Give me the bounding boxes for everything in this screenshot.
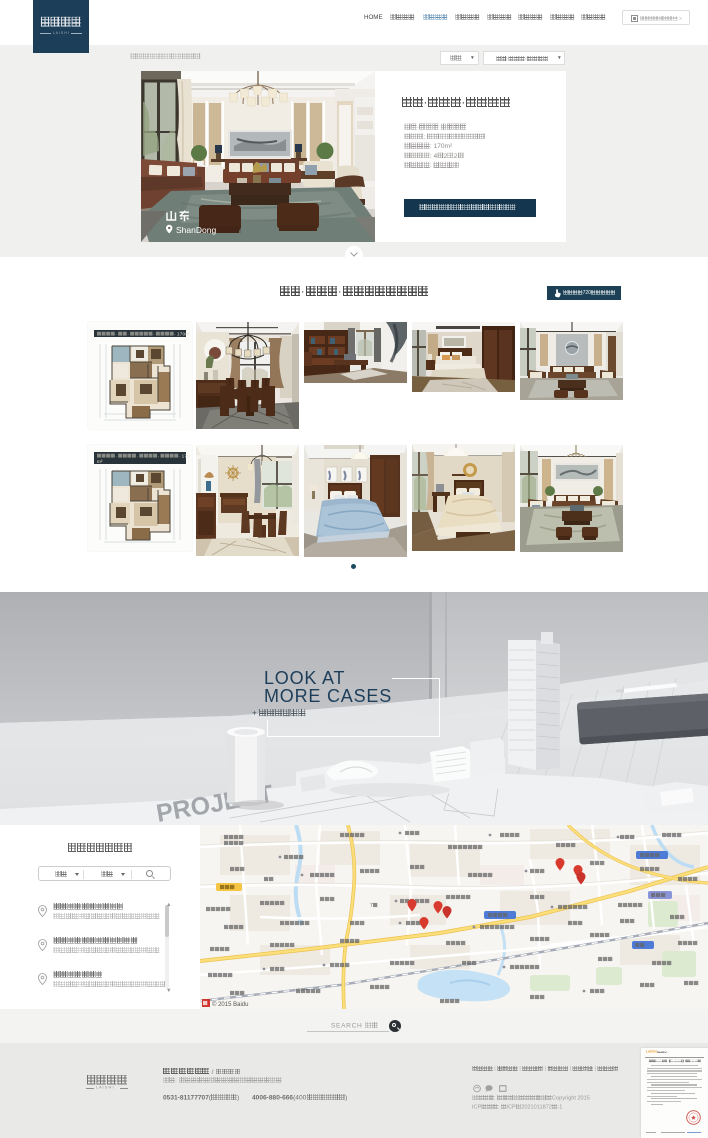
svg-text:7: 7 (370, 903, 373, 909)
svg-text:·: · (153, 332, 155, 337)
svg-text:·: · (174, 332, 176, 337)
svg-text:·: · (127, 332, 129, 337)
svg-text:·: · (137, 454, 139, 459)
svg-text:ShanDong: ShanDong (176, 225, 216, 235)
svg-text:·: · (115, 454, 117, 459)
svg-text:m²: m² (97, 459, 103, 464)
svg-text:0: 0 (187, 454, 190, 459)
svg-text:·: · (179, 454, 181, 459)
svg-text:·: · (115, 332, 117, 337)
svg-text:·: · (158, 454, 160, 459)
svg-text:© 2015 Baidu: © 2015 Baidu (212, 1001, 248, 1008)
